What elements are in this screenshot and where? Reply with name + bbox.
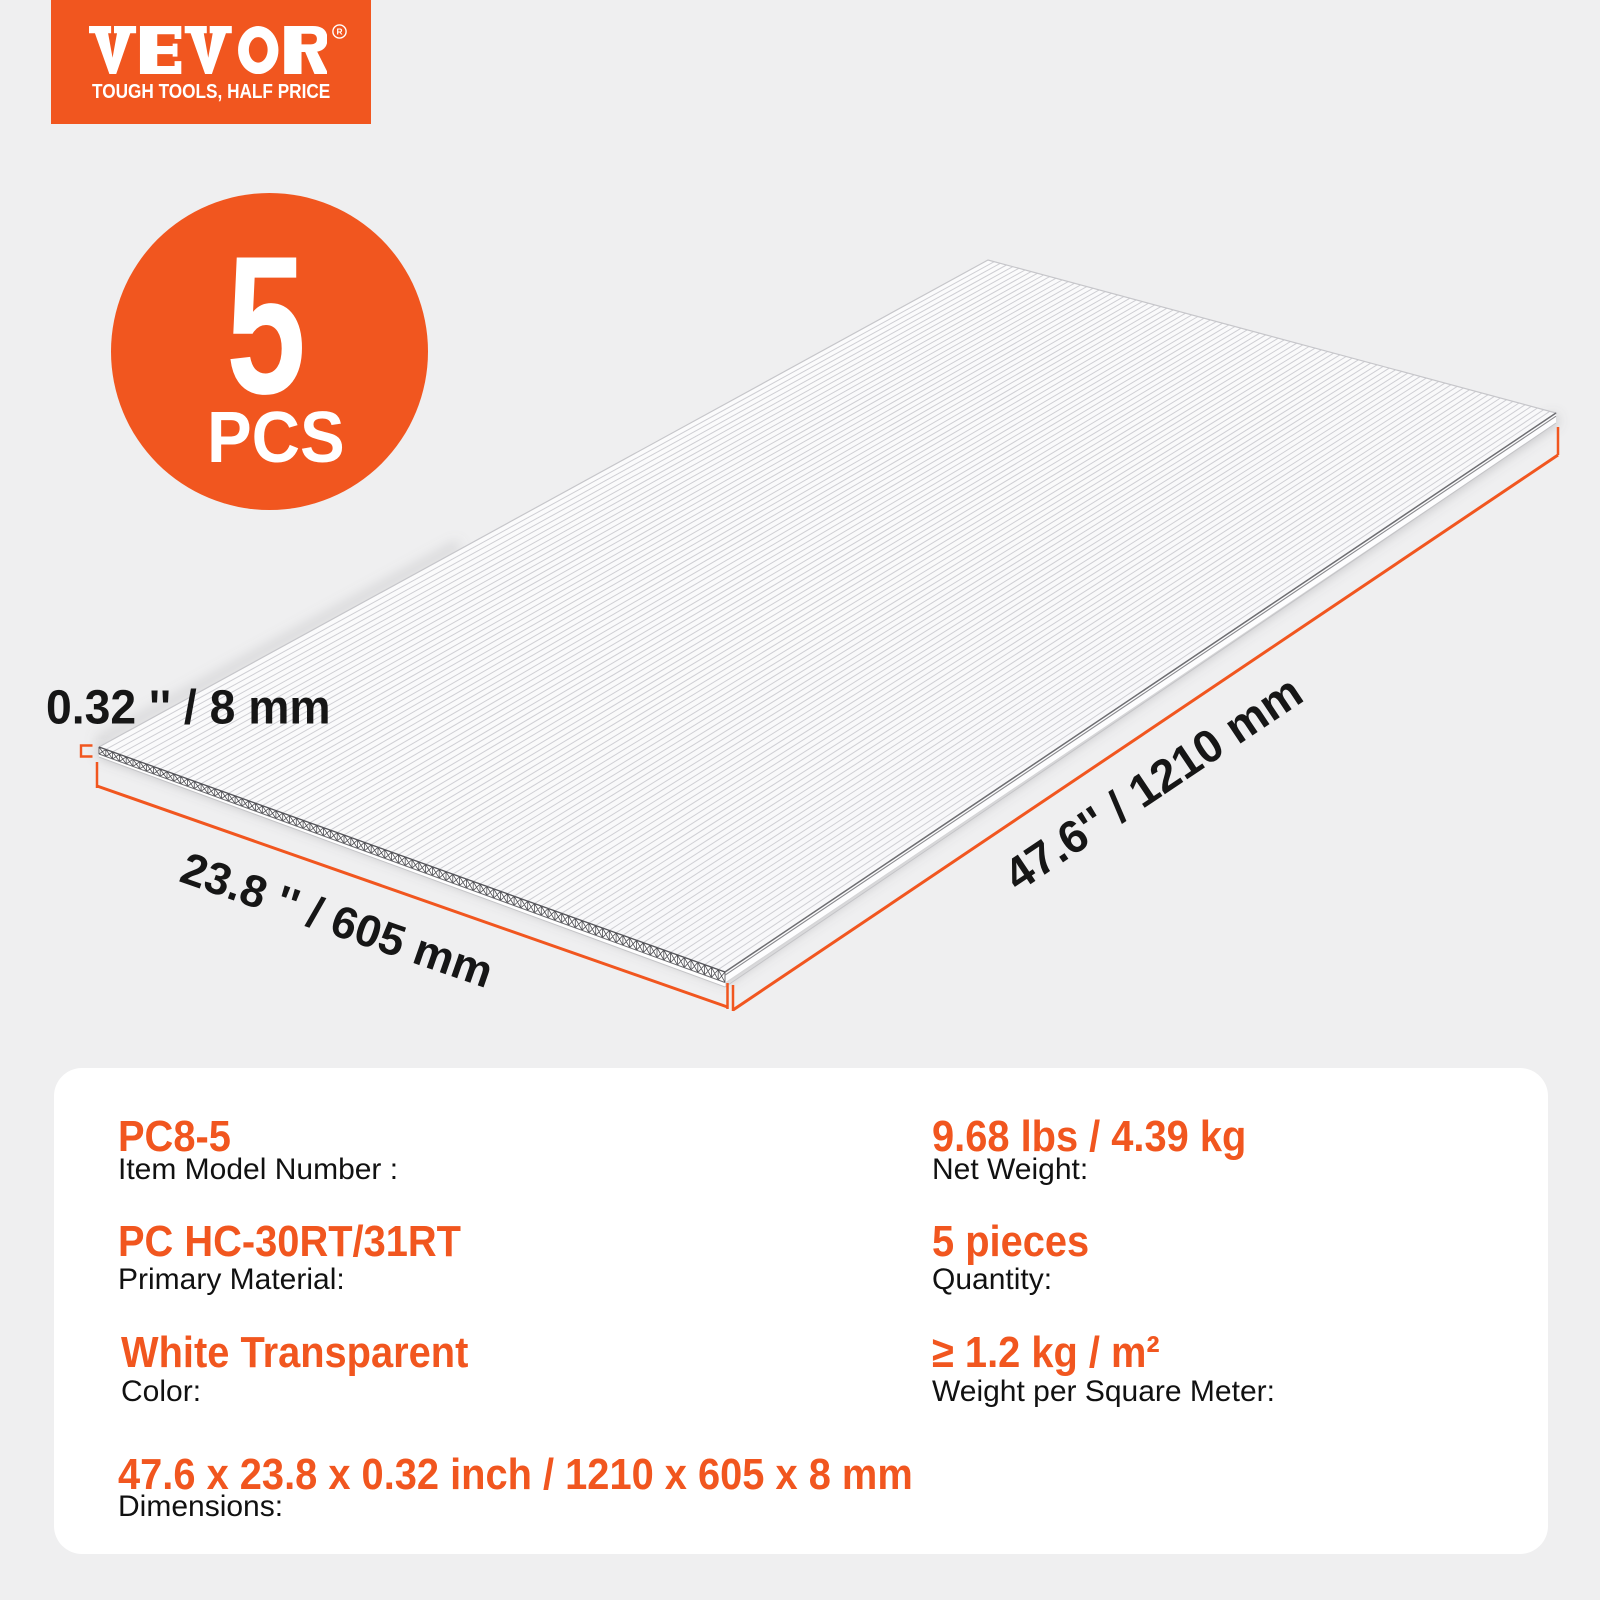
- svg-text:0.32 '' / 8 mm: 0.32 '' / 8 mm: [46, 680, 331, 734]
- svg-text:R: R: [336, 26, 342, 36]
